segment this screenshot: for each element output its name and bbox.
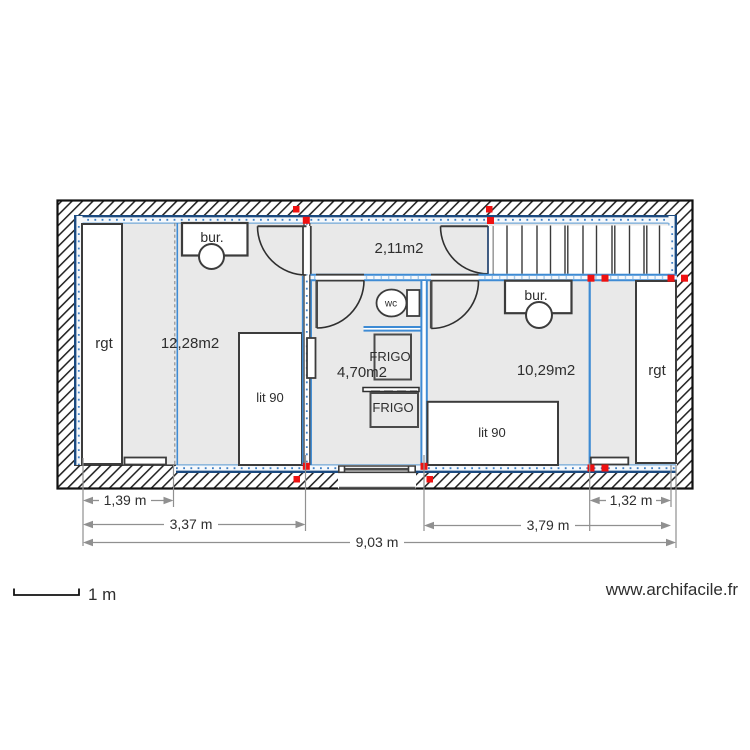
svg-text:lit 90: lit 90 <box>478 425 505 440</box>
svg-text:1,32 m: 1,32 m <box>610 492 653 508</box>
svg-text:bur.: bur. <box>200 229 223 245</box>
svg-text:3,37 m: 3,37 m <box>170 516 213 532</box>
svg-text:lit 90: lit 90 <box>256 390 283 405</box>
svg-text:rgt: rgt <box>648 362 666 379</box>
svg-text:2,11m2: 2,11m2 <box>375 240 424 257</box>
svg-text:rgt: rgt <box>95 335 113 352</box>
svg-text:wc: wc <box>384 299 397 310</box>
svg-text:12,28m2: 12,28m2 <box>161 335 219 352</box>
svg-text:1,39 m: 1,39 m <box>104 492 147 508</box>
svg-text:9,03 m: 9,03 m <box>356 534 399 550</box>
svg-text:FRIGO: FRIGO <box>372 400 413 415</box>
svg-text:bur.: bur. <box>524 287 547 303</box>
svg-text:4,70m2: 4,70m2 <box>337 364 387 381</box>
svg-text:3,79 m: 3,79 m <box>527 517 570 533</box>
svg-text:10,29m2: 10,29m2 <box>517 362 575 379</box>
svg-text:FRIGO: FRIGO <box>369 349 410 364</box>
svg-text:1 m: 1 m <box>88 585 116 604</box>
svg-text:www.archifacile.fr: www.archifacile.fr <box>605 580 739 599</box>
